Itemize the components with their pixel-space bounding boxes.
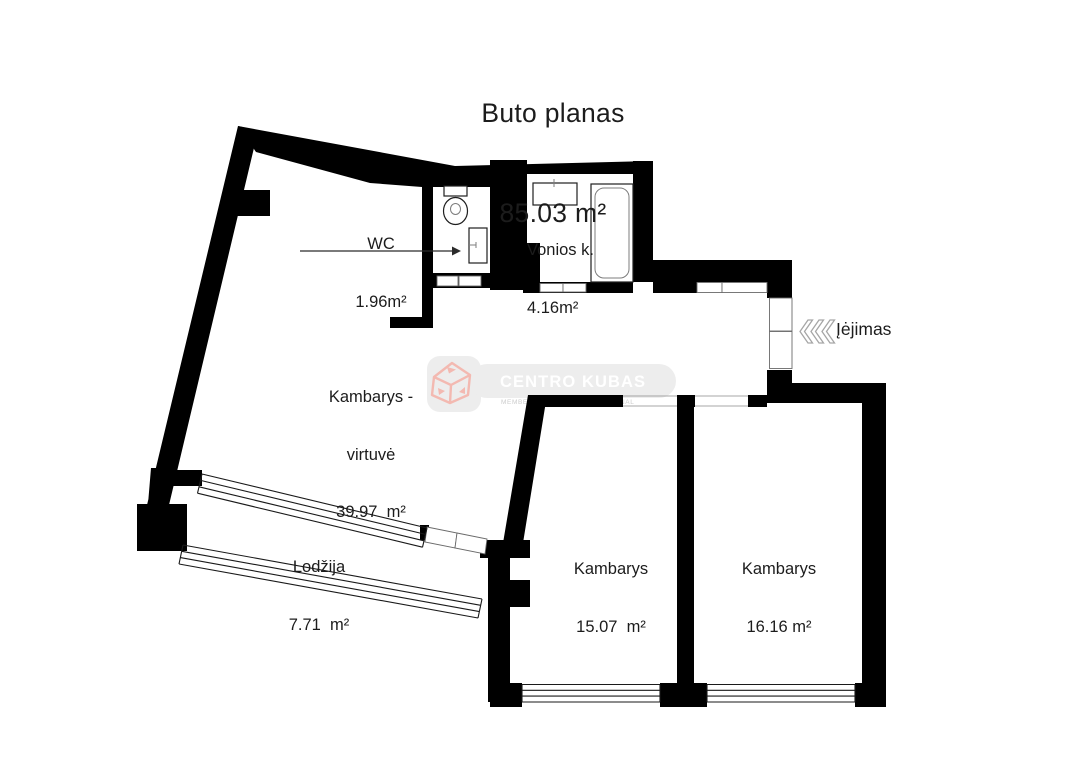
kitchen-name-line2: virtuvė (329, 446, 413, 465)
balcony-door (425, 527, 457, 548)
wc-door (459, 276, 481, 286)
bedroom2-window (707, 685, 855, 703)
hall-door (722, 283, 767, 293)
bedroom1-name: Kambarys (574, 560, 648, 579)
bedroom2-name: Kambarys (742, 560, 816, 579)
bedroom1-window (522, 685, 660, 703)
doors-layer (425, 276, 792, 554)
bedroom1-area: 15.07 m² (574, 618, 648, 637)
entrance-label: Įėjimas (836, 319, 891, 340)
bedroom2-area: 16.16 m² (742, 618, 816, 637)
wc-name: WC (355, 235, 406, 254)
watermark-brand: CENTRO KUBAS (500, 373, 646, 391)
wall-outer-left (137, 126, 270, 551)
wc-area: 1.96m² (355, 293, 406, 312)
entrance-door (770, 332, 793, 369)
plan-title-name: Buto planas (481, 97, 624, 130)
bathroom-name: Vonios k. (527, 241, 594, 260)
wall-rooms-divider (677, 405, 694, 685)
loggia-label: Lodžija 7.71 m² (289, 520, 350, 673)
balcony-door (455, 533, 487, 554)
bedroom2-label: Kambarys 16.16 m² (742, 522, 816, 675)
wc-label: WC 1.96m² (355, 197, 406, 350)
hall-door (697, 283, 722, 293)
loggia-name: Lodžija (289, 558, 350, 577)
entrance-chevrons-icon (800, 320, 835, 343)
entrance-door (770, 298, 793, 331)
toilet-icon (444, 186, 468, 225)
wall-bottom-blocks (490, 683, 886, 707)
kitchen-name-line1: Kambarys - (329, 388, 413, 407)
wall-outer-right (862, 401, 886, 685)
floor-plan-canvas: CENTRO KUBAS MEMBE NAL (0, 0, 1086, 768)
watermark-subtext-left: MEMBE (501, 399, 528, 406)
bedroom2-door-gap (695, 396, 748, 406)
bathroom-area: 4.16m² (527, 299, 594, 318)
bedroom1-label: Kambarys 15.07 m² (574, 522, 648, 675)
loggia-area: 7.71 m² (289, 616, 350, 635)
wc-door (437, 276, 458, 286)
bathroom-label: Vonios k. 4.16m² (527, 203, 594, 356)
